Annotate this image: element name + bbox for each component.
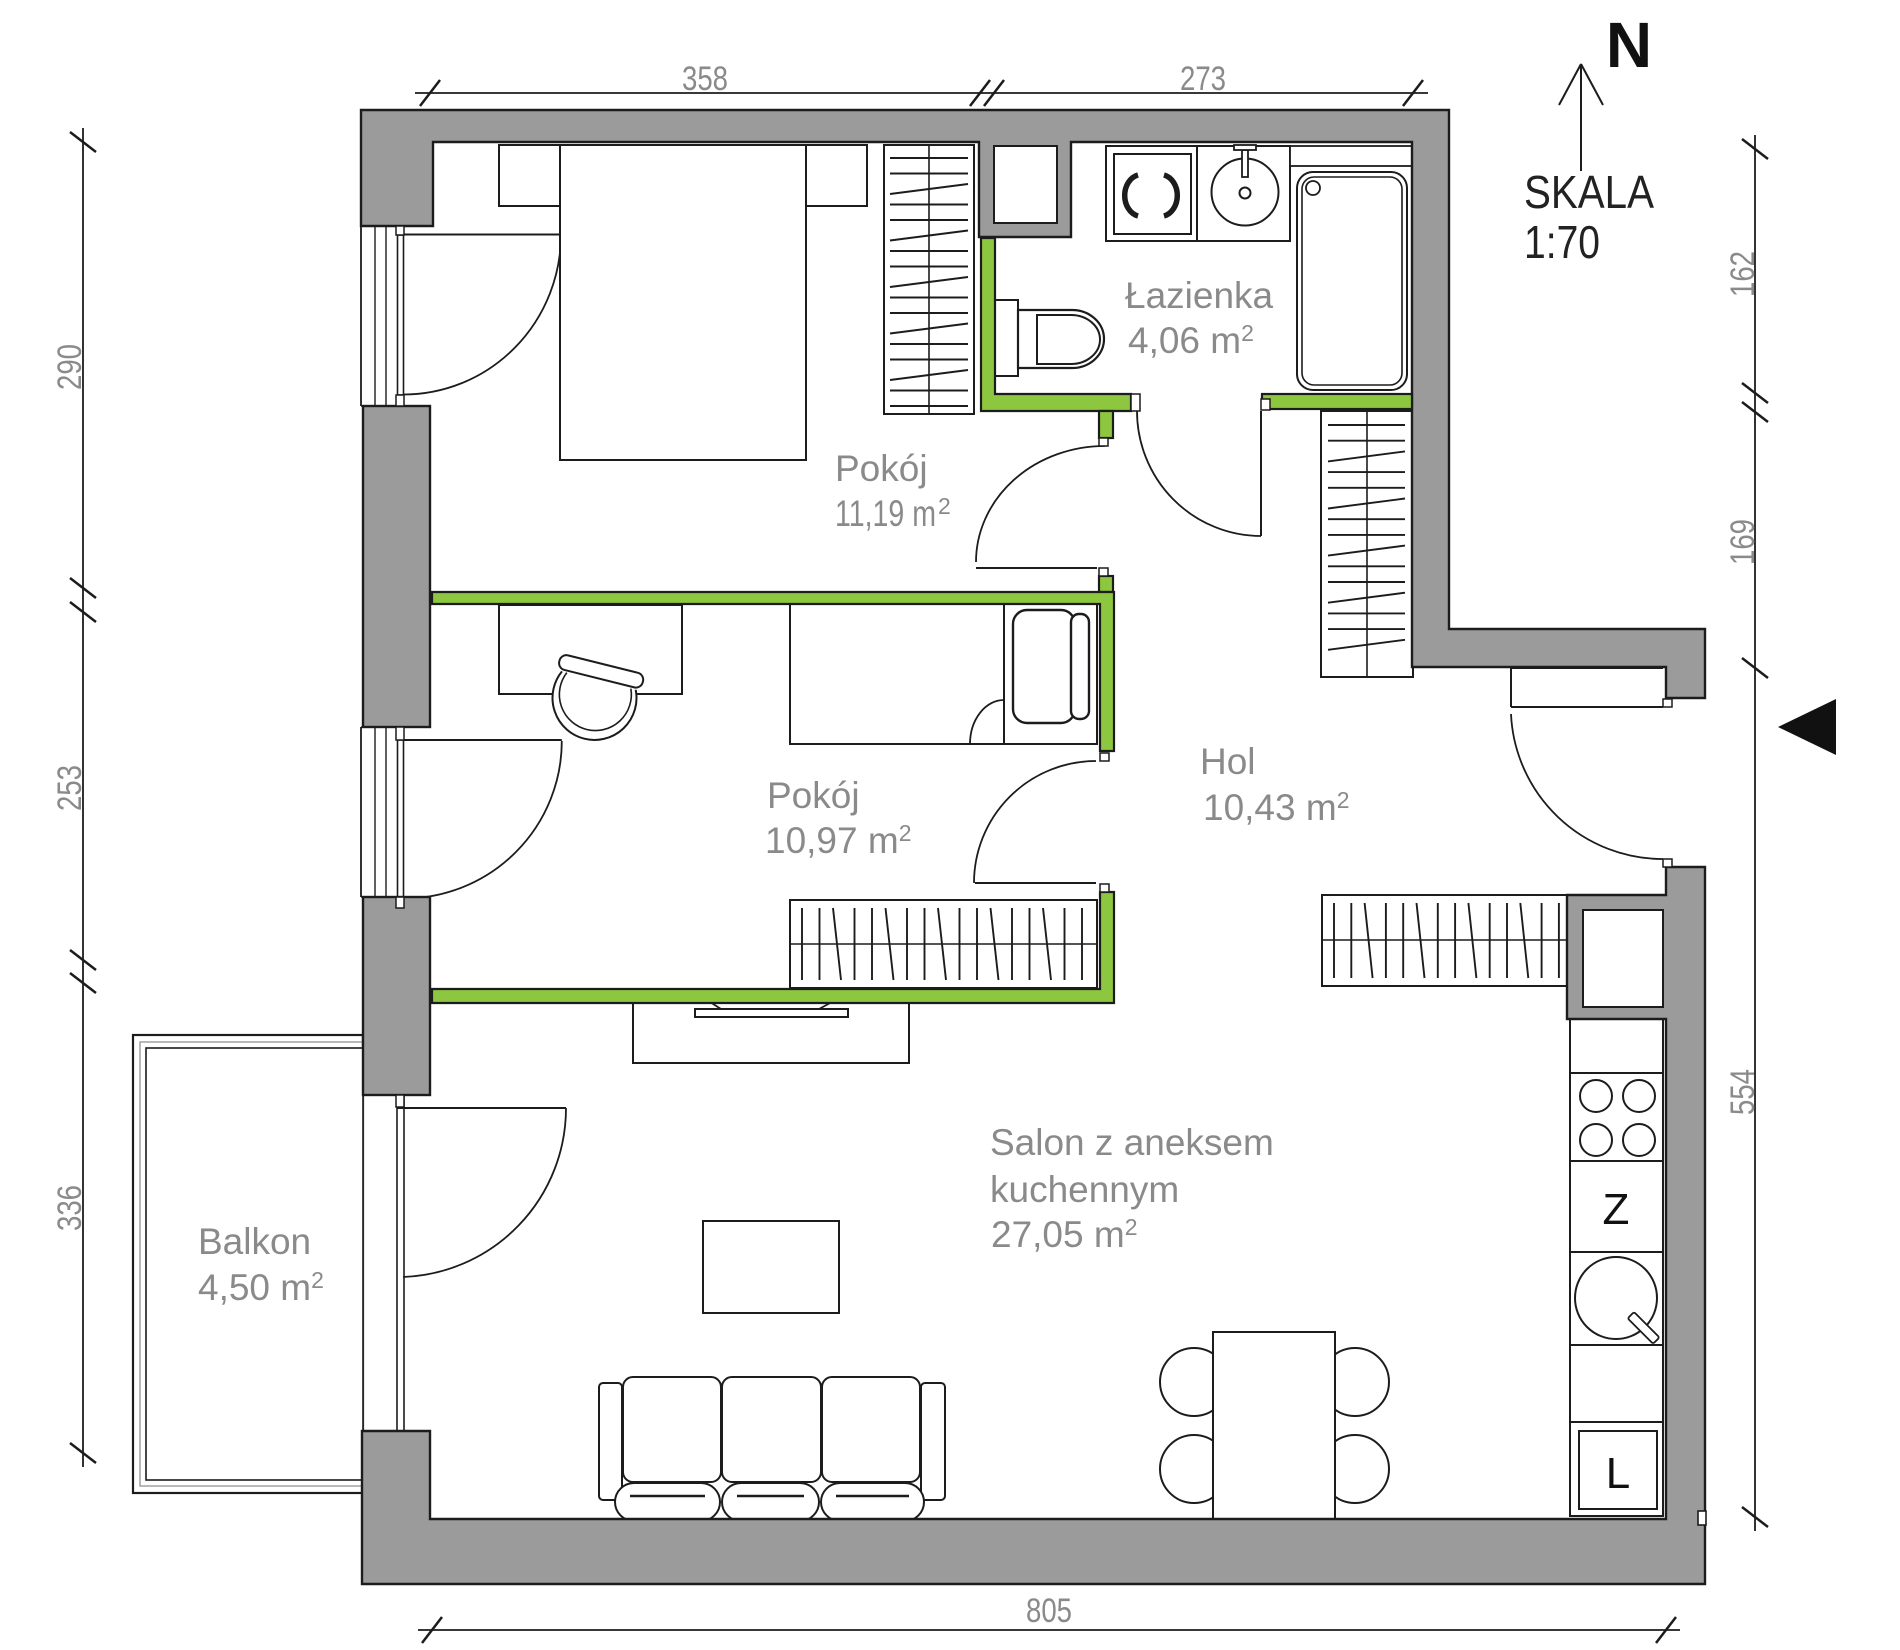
svg-text:Salon z aneksem: Salon z aneksem — [990, 1122, 1274, 1163]
svg-text:kuchennym: kuchennym — [990, 1169, 1179, 1210]
svg-text:290: 290 — [51, 344, 89, 390]
svg-text:Pokój: Pokój — [767, 775, 860, 816]
svg-text:11,19 m: 11,19 m — [835, 493, 936, 534]
svg-text:554: 554 — [1724, 1069, 1762, 1115]
svg-text:Pokój: Pokój — [835, 448, 928, 489]
svg-text:336: 336 — [51, 1185, 89, 1231]
svg-text:L: L — [1606, 1449, 1630, 1498]
svg-text:10,43 m2: 10,43 m2 — [1203, 787, 1350, 828]
svg-text:10,97 m2: 10,97 m2 — [765, 820, 912, 861]
svg-text:Łazienka: Łazienka — [1125, 275, 1274, 316]
svg-text:1:70: 1:70 — [1524, 216, 1600, 268]
svg-text:N: N — [1606, 9, 1652, 81]
svg-text:358: 358 — [682, 60, 728, 98]
svg-text:4,06 m2: 4,06 m2 — [1128, 320, 1254, 361]
svg-text:2: 2 — [938, 493, 951, 519]
svg-text:Hol: Hol — [1200, 741, 1256, 782]
svg-text:27,05 m2: 27,05 m2 — [991, 1214, 1138, 1255]
svg-text:805: 805 — [1026, 1592, 1072, 1630]
svg-text:4,50 m2: 4,50 m2 — [198, 1267, 324, 1308]
svg-text:169: 169 — [1724, 519, 1762, 565]
svg-text:SKALA: SKALA — [1524, 166, 1654, 218]
svg-text:273: 273 — [1180, 60, 1226, 98]
svg-text:162: 162 — [1724, 251, 1762, 297]
svg-text:253: 253 — [51, 765, 89, 811]
svg-text:Balkon: Balkon — [198, 1221, 311, 1262]
svg-text:Z: Z — [1603, 1185, 1630, 1234]
